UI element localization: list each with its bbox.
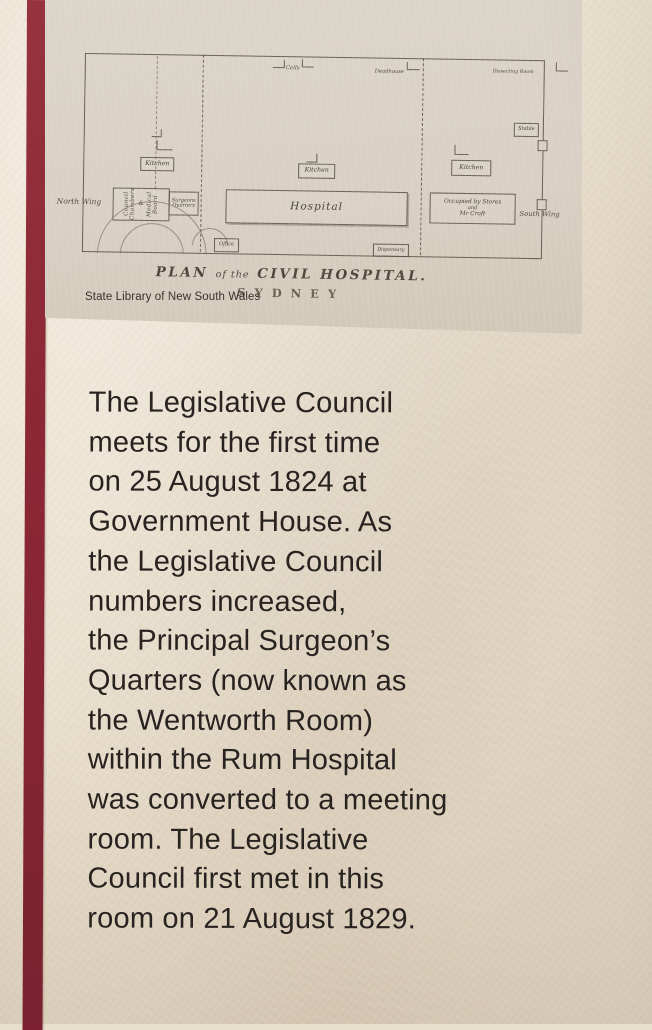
caption-line: numbers increased, xyxy=(88,582,448,623)
image-credit: State Library of New South Wales xyxy=(85,291,260,303)
label-north-wing: North Wing xyxy=(57,198,102,206)
civil-hospital-plan-drawing: North Wing Kitchen Council Chambers & Me… xyxy=(41,0,583,344)
caption-line: Council first met in this xyxy=(87,860,447,901)
door-mark xyxy=(407,62,420,70)
doorway-notch xyxy=(538,140,548,151)
room-stable: Stable xyxy=(514,123,539,137)
room-kitchen-middle: Kitchen xyxy=(298,163,335,179)
label-deadhouse: Deadhouse xyxy=(375,70,404,76)
door-mark xyxy=(306,153,317,162)
label-surgeons: Surgeons xyxy=(172,198,196,204)
caption-line: The Legislative Council xyxy=(89,384,449,425)
caption-line: was converted to a meeting xyxy=(88,781,448,822)
caption-line: room. The Legislative xyxy=(87,820,447,861)
caption-line: Government House. As xyxy=(88,503,448,544)
label-council-chambers: Council Chambers xyxy=(123,188,136,220)
label-occupied-line1: Occupied by Stores xyxy=(444,199,501,206)
plan-outer-wall xyxy=(82,53,545,259)
door-mark xyxy=(556,62,568,71)
plan-print-sheet: North Wing Kitchen Council Chambers & Me… xyxy=(45,0,582,336)
plan-subtitle-sydney: SYDNEY xyxy=(71,283,511,304)
room-office: Office xyxy=(214,238,239,252)
label-ampersand: & xyxy=(138,201,143,208)
door-mark xyxy=(156,140,172,150)
doorway-notch xyxy=(537,199,547,210)
door-mark xyxy=(454,145,468,155)
room-hospital: Hospital xyxy=(225,189,408,226)
plan-wall-divider-right xyxy=(420,58,424,255)
caption-line: the Wentworth Room) xyxy=(88,701,448,742)
room-kitchen-right: Kitchen xyxy=(451,160,491,177)
label-cells: Cells xyxy=(286,66,300,72)
label-occupied-line2: and xyxy=(468,206,477,212)
caption-line: on 25 August 1824 at xyxy=(88,463,448,504)
plan-wall-divider-left xyxy=(200,55,204,252)
plan-inner-dashed-wall xyxy=(155,56,158,189)
plan-title: PLAN of the CIVIL HOSPITAL. xyxy=(71,260,511,286)
caption-line: within the Rum Hospital xyxy=(88,741,448,782)
label-dissecting-room: Dissecting Room xyxy=(493,70,534,75)
carriage-loop-inner-arc xyxy=(119,223,184,288)
label-medical-board: Medical Board xyxy=(147,189,160,220)
label-quarters: Quarters xyxy=(172,203,195,209)
side-path-arc xyxy=(192,228,229,265)
label-south-wing: South Wing xyxy=(519,211,559,218)
caption-line: the Legislative Council xyxy=(88,542,448,583)
room-occupied-by-stores: Occupied by Stores and Mr Croft xyxy=(429,192,515,224)
door-mark xyxy=(273,60,285,68)
caption-line: Quarters (now known as xyxy=(88,661,448,702)
room-dispensary: Dispensary xyxy=(373,244,409,258)
door-mark xyxy=(152,129,162,137)
caption-line: meets for the first time xyxy=(89,423,449,464)
label-occupied-line3: Mr Croft xyxy=(460,211,486,218)
caption-line: the Principal Surgeon’s xyxy=(88,622,448,663)
plan-title-plan: PLAN xyxy=(156,264,209,281)
room-kitchen-left: Kitchen xyxy=(140,157,174,172)
caption-line: room on 21 August 1829. xyxy=(87,900,447,941)
wall-caption-text: The Legislative Council meets for the fi… xyxy=(87,384,448,941)
room-surgeons-quarters: Surgeons Quarters xyxy=(168,191,198,215)
door-mark xyxy=(302,59,314,67)
plan-title-rest: CIVIL HOSPITAL. xyxy=(257,266,427,285)
room-council-chambers: Council Chambers & Medical Board xyxy=(112,187,170,221)
plan-title-of-the: of the xyxy=(216,269,250,281)
carriage-loop-outer-arc xyxy=(96,200,208,312)
